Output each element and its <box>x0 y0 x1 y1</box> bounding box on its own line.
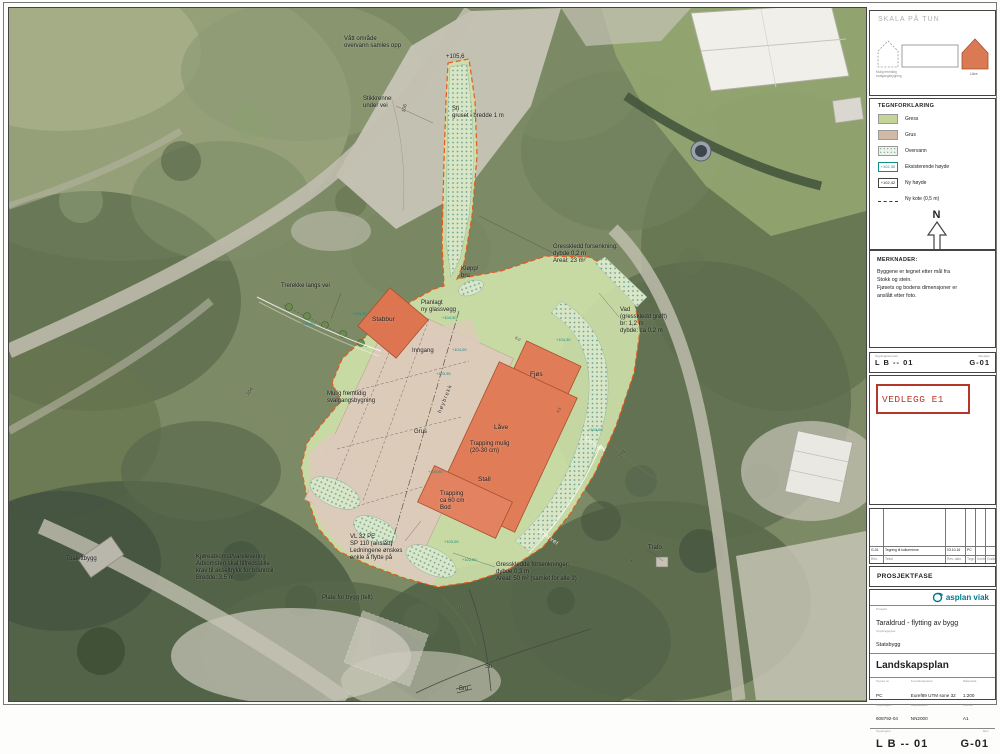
attachment-box: VEDLEGG E1 <box>869 375 996 505</box>
title-block-field: Tegnet avPC <box>876 679 911 703</box>
revision-row-sign: PC <box>965 546 975 555</box>
project-phase-label: PROSJEKTFASE <box>877 573 933 580</box>
revision-row-rev: G-01 <box>870 546 883 555</box>
legend-swatch-overvann <box>878 146 898 156</box>
client-label: Oppdragsgiver <box>876 630 989 634</box>
drawing-number-value: L B -- 01 <box>875 358 913 367</box>
site-plan-area <box>8 7 867 702</box>
title-block-field: HøydedatumNN2000 <box>911 703 963 727</box>
code-label: Tegningsnr. <box>876 730 928 734</box>
yard-elevation-sketch: Mulig fremtidig svalgangsbygning Låve <box>870 23 995 81</box>
legend-item: Ny kote (0,5 m) <box>878 193 995 204</box>
attachment-stamp: VEDLEGG E1 <box>876 384 970 414</box>
revision-row-appr <box>985 546 995 555</box>
legend-item: +102,42Ny høyde <box>878 177 995 188</box>
legend-item: Overvann <box>878 145 995 156</box>
project-label: Prosjekt <box>876 608 989 612</box>
asplan-viak-logo-text: asplan viak <box>946 593 989 602</box>
legend-swatch-ny: +102,42 <box>878 178 898 188</box>
legend-label: Ny kote (0,5 m) <box>905 196 939 202</box>
site-plan-svg <box>9 8 866 701</box>
notes-title: MERKNADER: <box>877 257 988 263</box>
legend-label: Overvann <box>905 148 927 154</box>
revision-cell: Revisjon G-01 <box>969 354 990 371</box>
revision-col-label: Rev. dato <box>945 555 965 563</box>
north-indicator: N <box>878 210 995 251</box>
legend-item: +102,30Eksisterende høyde <box>878 161 995 172</box>
sketch-caption-line2: svalgangsbygning <box>876 74 902 78</box>
building-trafo <box>656 557 668 567</box>
legend-swatch-eks: +102,30 <box>878 162 898 172</box>
project-name: Taraldrud - flytting av bygg <box>876 620 958 627</box>
legend-label: Gress <box>905 116 918 122</box>
drawing-code: L B -- 01 <box>876 738 928 750</box>
asplan-viak-logo-icon <box>932 592 943 603</box>
drawing-number-cell: Tegningsnummer L B -- 01 <box>875 354 913 371</box>
legend-swatch-grus <box>878 130 898 140</box>
legend-item: Gress <box>878 113 995 124</box>
legend-box: TEGNFORKLARING GressGrusOvervann+102,30E… <box>869 98 996 250</box>
title-block-field: Målestokk1:200 <box>963 679 989 703</box>
skala-title: SKALA PÅ TUN <box>878 16 995 23</box>
lave-sketch <box>962 39 988 69</box>
project-phase-box: PROSJEKTFASE <box>869 566 996 587</box>
legend-swatch-kote <box>878 201 898 202</box>
revision-col-label: Godkj <box>985 555 995 563</box>
legend-title: TEGNFORKLARING <box>878 103 995 109</box>
revision-col-label: Kontr <box>975 555 985 563</box>
revision-row-date: 03.10.16 <box>945 546 965 555</box>
revision-col-label: Rev. <box>870 555 883 563</box>
title-block-field: Oppdragsnr.608792-04 <box>876 703 911 727</box>
lave-sketch-label: Låve <box>970 72 978 76</box>
revision-col-label: Tekst <box>883 555 945 563</box>
scale-on-yard-box: SKALA PÅ TUN Mulig fremtidig svalgangsby… <box>869 10 996 96</box>
title-block-field: FormatA1 <box>963 703 989 727</box>
legend-swatch-grass <box>878 114 898 124</box>
revision-row-text: Tegning til kulturminne <box>883 546 945 555</box>
attachment-stamp-text: VEDLEGG E1 <box>882 394 944 405</box>
title-block-fields: Tegnet avPCKoordinatsystemEuref89 UTM so… <box>870 678 995 729</box>
rev-label: Rev. <box>961 730 989 734</box>
drawing-sheet: { "side": { "skala": { "title": "SKALA P… <box>0 0 1000 708</box>
north-arrow-icon <box>924 221 950 251</box>
client-name: Statsbygg <box>876 642 900 648</box>
drawing-number-strip: Tegningsnummer L B -- 01 Revisjon G-01 <box>869 352 996 373</box>
title-block-field: KoordinatsystemEuref89 UTM sone 32 <box>911 679 963 703</box>
revision-table: G-01 Tegning til kulturminne 03.10.16 PC… <box>869 508 996 564</box>
project-row: Prosjekt Taraldrud - flytting av bygg Op… <box>870 606 995 654</box>
notes-box: MERKNADER: Byggene er tegnet etter mål f… <box>869 250 996 348</box>
legend-item: Grus <box>878 129 995 140</box>
title-block-codes: Tegningsnr. L B -- 01 Rev. G-01 <box>870 729 995 754</box>
revision-row-ctrl <box>975 546 985 555</box>
drawing-title: Landskapsplan <box>870 654 995 678</box>
legend-items: GressGrusOvervann+102,30Eksisterende høy… <box>878 113 995 204</box>
legend-label: Eksisterende høyde <box>905 164 949 170</box>
north-label: N <box>933 210 941 221</box>
title-block: asplan viak Prosjekt Taraldrud - flyttin… <box>869 589 996 700</box>
legend-label: Grus <box>905 132 916 138</box>
revision-value: G-01 <box>969 358 990 367</box>
notes-body: Byggene er tegnet etter mål fra Stokk og… <box>877 269 988 301</box>
revision-col-label: Tegn <box>965 555 975 563</box>
rev-code: G-01 <box>961 738 989 750</box>
legend-label: Ny høyde <box>905 180 926 186</box>
logo-row: asplan viak <box>870 590 995 606</box>
